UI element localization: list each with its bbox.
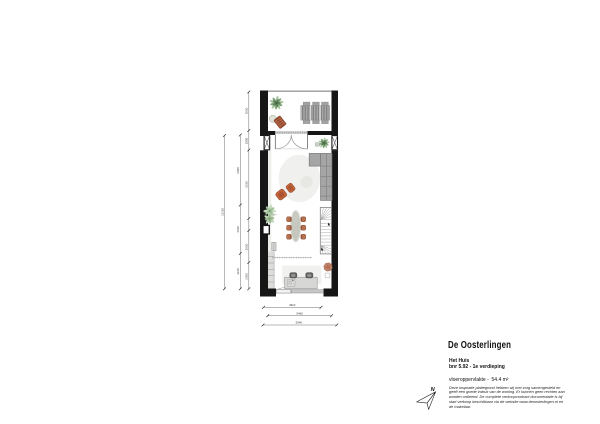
- svg-text:4910: 4910: [289, 303, 296, 307]
- svg-text:3210: 3210: [236, 268, 240, 275]
- svg-text:1800: 1800: [245, 137, 249, 144]
- svg-text:6230: 6230: [245, 181, 249, 188]
- svg-text:2390: 2390: [245, 273, 249, 280]
- svg-text:11310: 11310: [220, 208, 224, 216]
- svg-text:3520: 3520: [245, 107, 249, 114]
- svg-text:5940: 5940: [296, 321, 303, 325]
- svg-text:4430: 4430: [236, 226, 240, 233]
- svg-text:6380: 6380: [236, 167, 240, 174]
- svg-text:2920: 2920: [245, 243, 249, 250]
- svg-text:5460: 5460: [296, 311, 303, 315]
